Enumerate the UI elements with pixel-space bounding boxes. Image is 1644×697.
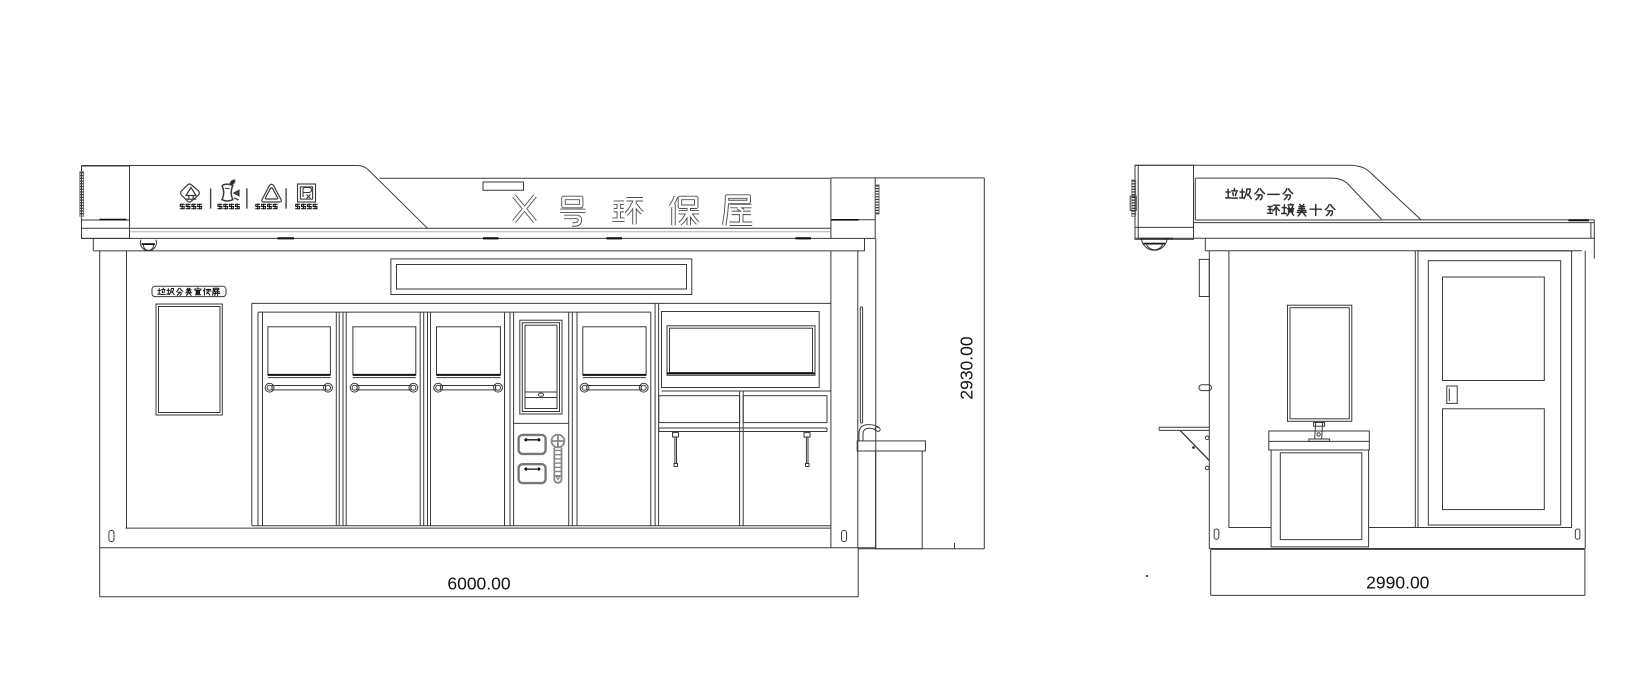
svg-text:6000.00: 6000.00: [447, 574, 511, 594]
svg-text:2990.00: 2990.00: [1366, 573, 1430, 593]
svg-text:2930.00: 2930.00: [957, 336, 977, 400]
